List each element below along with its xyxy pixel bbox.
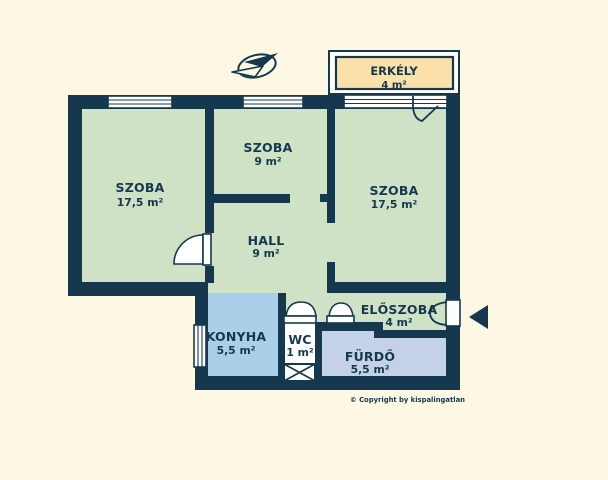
wall-tick (320, 194, 327, 202)
hall-label: HALL (248, 233, 285, 248)
floor-plan-canvas: SZOBA 17,5 m² SZOBA 9 m² SZOBA 17,5 m² H… (0, 0, 608, 480)
wall-left-room-upper (205, 109, 214, 233)
eloszoba-label: ELŐSZOBA (361, 302, 438, 317)
szoba-left-area: 17,5 m² (117, 196, 164, 209)
eloszoba-area: 4 m² (385, 316, 413, 329)
furdo-label: FÜRDŐ (345, 349, 395, 364)
konyha-area: 5,5 m² (217, 344, 256, 357)
outer-wall-bottom-left (68, 282, 208, 296)
balcony-window-icon (344, 95, 447, 108)
window-middle-room-icon (243, 96, 303, 108)
erkely-label: ERKÉLY (370, 63, 418, 78)
wall-eloszoba-top (327, 282, 446, 293)
szoba-left-label: SZOBA (116, 180, 165, 195)
szoba-middle-label: SZOBA (244, 140, 293, 155)
outer-wall-right (446, 95, 460, 390)
wall-left-room-lower (205, 266, 214, 283)
wc-area: 1 m² (286, 346, 314, 359)
outer-wall-left (68, 95, 82, 296)
outer-wall-bottom (195, 376, 460, 390)
wall-bath-top-right (374, 330, 446, 338)
hall-area: 9 m² (252, 247, 280, 260)
copyright-text: © Copyright by kispalingatlan (350, 396, 465, 404)
wall-right-room-upper (327, 109, 335, 223)
floor-plan: SZOBA 17,5 m² SZOBA 9 m² SZOBA 17,5 m² H… (0, 0, 608, 480)
szoba-middle-area: 9 m² (254, 155, 282, 168)
wall-right-room-lower (327, 262, 335, 283)
wc-label: WC (288, 332, 311, 347)
erkely-area: 4 m² (381, 80, 406, 91)
kitchen-window-icon (194, 325, 206, 367)
konyha-label: KONYHA (206, 329, 267, 344)
window-left-room-icon (108, 96, 172, 108)
wall-middle-room-hall (208, 194, 290, 203)
shaft-crossed-box-icon (284, 364, 315, 381)
szoba-right-area: 17,5 m² (371, 198, 418, 211)
furdo-area: 5,5 m² (351, 363, 390, 376)
szoba-right-label: SZOBA (370, 183, 419, 198)
